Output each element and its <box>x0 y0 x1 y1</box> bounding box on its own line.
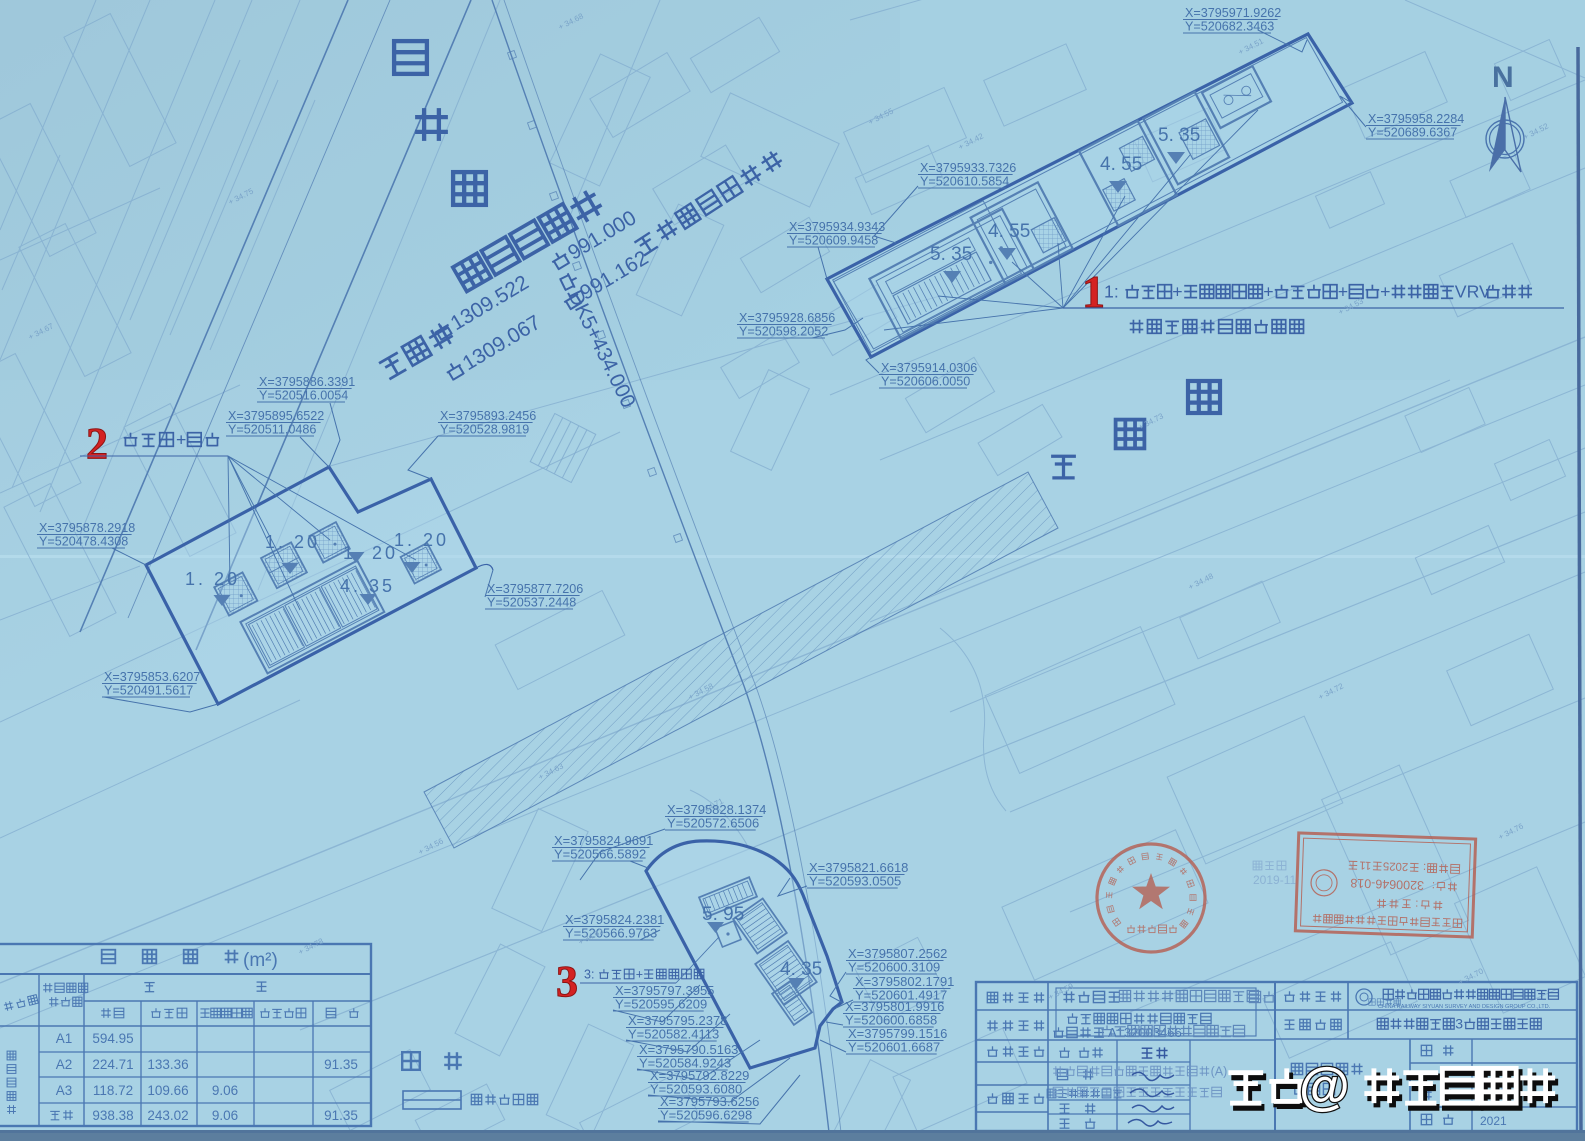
svg-text:9.06: 9.06 <box>212 1108 238 1123</box>
svg-text:CHINA RAILWAY SIYUAN SURVEY AN: CHINA RAILWAY SIYUAN SURVEY AND DESIGN G… <box>1378 1004 1551 1010</box>
svg-text::: : <box>1415 898 1419 910</box>
svg-text:2019-11: 2019-11 <box>1253 873 1296 887</box>
svg-text:X=3795886.3391: X=3795886.3391 <box>259 375 355 389</box>
svg-text:N: N <box>1492 61 1514 94</box>
svg-text:Y=520609.9458: Y=520609.9458 <box>789 234 878 248</box>
svg-text:Y=520516.0054: Y=520516.0054 <box>259 389 348 403</box>
svg-text:3: 3 <box>1455 1016 1463 1032</box>
svg-text:Y=520689.6367: Y=520689.6367 <box>1368 126 1457 140</box>
svg-text:+: + <box>1380 282 1390 302</box>
svg-text:Y=520610.5854: Y=520610.5854 <box>920 175 1009 189</box>
svg-text:3: 3 <box>556 957 578 1006</box>
svg-text:A3: A3 <box>56 1083 73 1098</box>
svg-text:X=3795893.2456: X=3795893.2456 <box>440 409 536 423</box>
svg-text:Y=520600.3109: Y=520600.3109 <box>848 960 940 975</box>
svg-text:+: + <box>636 967 643 981</box>
svg-text:Y=520511.0486: Y=520511.0486 <box>228 423 316 437</box>
svg-text:2025: 2025 <box>1383 859 1409 872</box>
svg-text:Y=520601.6687: Y=520601.6687 <box>848 1040 940 1055</box>
svg-text:Y=520593.0505: Y=520593.0505 <box>809 874 901 889</box>
svg-text:594.95: 594.95 <box>92 1031 133 1046</box>
svg-text:X=3795877.7206: X=3795877.7206 <box>487 582 583 596</box>
svg-text:X=3795971.9262: X=3795971.9262 <box>1185 6 1281 20</box>
svg-text:3:: 3: <box>584 967 594 981</box>
svg-text:X=3795914.0306: X=3795914.0306 <box>881 361 977 375</box>
svg-text:Y=520596.6298: Y=520596.6298 <box>660 1108 752 1123</box>
svg-text:1. 20: 1. 20 <box>394 530 449 550</box>
svg-text:4. 35: 4. 35 <box>780 959 822 980</box>
svg-text:5. 95: 5. 95 <box>702 904 744 925</box>
svg-text:(A): (A) <box>1211 1064 1228 1078</box>
svg-text:X=3795878.2918: X=3795878.2918 <box>39 521 135 535</box>
svg-text:@: @ <box>1299 1058 1350 1116</box>
svg-text:Y=520595.6209: Y=520595.6209 <box>615 997 707 1012</box>
svg-text:A1: A1 <box>56 1031 73 1046</box>
svg-text:4. 55: 4. 55 <box>1100 154 1142 175</box>
svg-text:+: + <box>1263 282 1273 302</box>
svg-text:Y=520582.4113: Y=520582.4113 <box>628 1027 719 1042</box>
svg-text:X=3795933.7326: X=3795933.7326 <box>920 161 1016 175</box>
svg-text:1. 20: 1. 20 <box>185 569 240 589</box>
svg-text:+: + <box>1338 282 1348 302</box>
svg-text:Y=520528.9819: Y=520528.9819 <box>440 423 529 437</box>
svg-text:109.66: 109.66 <box>147 1083 188 1098</box>
svg-text::: : <box>1432 879 1436 891</box>
svg-text:9.06: 9.06 <box>212 1083 238 1098</box>
svg-text:5. 35: 5. 35 <box>930 244 972 265</box>
svg-text:X=3795895.6522: X=3795895.6522 <box>228 409 324 423</box>
svg-text:938.38: 938.38 <box>92 1108 133 1123</box>
svg-text:4. 55: 4. 55 <box>988 221 1030 242</box>
svg-text:5. 35: 5. 35 <box>1158 125 1200 146</box>
svg-text::: : <box>1423 861 1427 873</box>
svg-text:3200646-018: 3200646-018 <box>1350 876 1424 893</box>
svg-text:133.36: 133.36 <box>147 1057 188 1072</box>
svg-text:A2: A2 <box>56 1057 73 1072</box>
svg-text:+: + <box>176 430 186 450</box>
svg-text:2: 2 <box>86 419 108 468</box>
svg-text:Y=520572.6506: Y=520572.6506 <box>667 816 759 831</box>
svg-text:Y=520598.2052: Y=520598.2052 <box>739 325 828 339</box>
svg-text:2021: 2021 <box>1480 1114 1507 1128</box>
svg-text:1. 20: 1. 20 <box>265 532 320 552</box>
svg-text:X=3795958.2284: X=3795958.2284 <box>1368 112 1464 126</box>
svg-text:(m²): (m²) <box>243 950 278 971</box>
svg-text:224.71: 224.71 <box>92 1057 133 1072</box>
svg-text:VRV: VRV <box>1455 282 1491 302</box>
svg-text:X=3795934.9343: X=3795934.9343 <box>789 220 885 234</box>
svg-text:118.72: 118.72 <box>93 1083 133 1098</box>
svg-text:Y=520566.5892: Y=520566.5892 <box>554 847 646 862</box>
svg-text:Y=520537.2448: Y=520537.2448 <box>487 596 576 610</box>
svg-text:Y=520606.0050: Y=520606.0050 <box>881 375 970 389</box>
svg-text:1: 1 <box>1082 266 1105 317</box>
svg-text:X=3795928.6856: X=3795928.6856 <box>739 311 835 325</box>
svg-text:11: 11 <box>1359 859 1371 871</box>
svg-text:Y=520491.5617: Y=520491.5617 <box>104 684 193 698</box>
svg-text:243.02: 243.02 <box>147 1108 188 1123</box>
svg-text:+: + <box>1172 282 1182 302</box>
svg-text:91.35: 91.35 <box>324 1108 358 1123</box>
svg-text:Y=520478.4308: Y=520478.4308 <box>39 535 128 549</box>
svg-text:X=3795853.6207: X=3795853.6207 <box>104 670 200 684</box>
svg-text:4. 35: 4. 35 <box>340 576 395 596</box>
svg-text:1:: 1: <box>1104 282 1119 302</box>
svg-text:91.35: 91.35 <box>324 1057 358 1072</box>
